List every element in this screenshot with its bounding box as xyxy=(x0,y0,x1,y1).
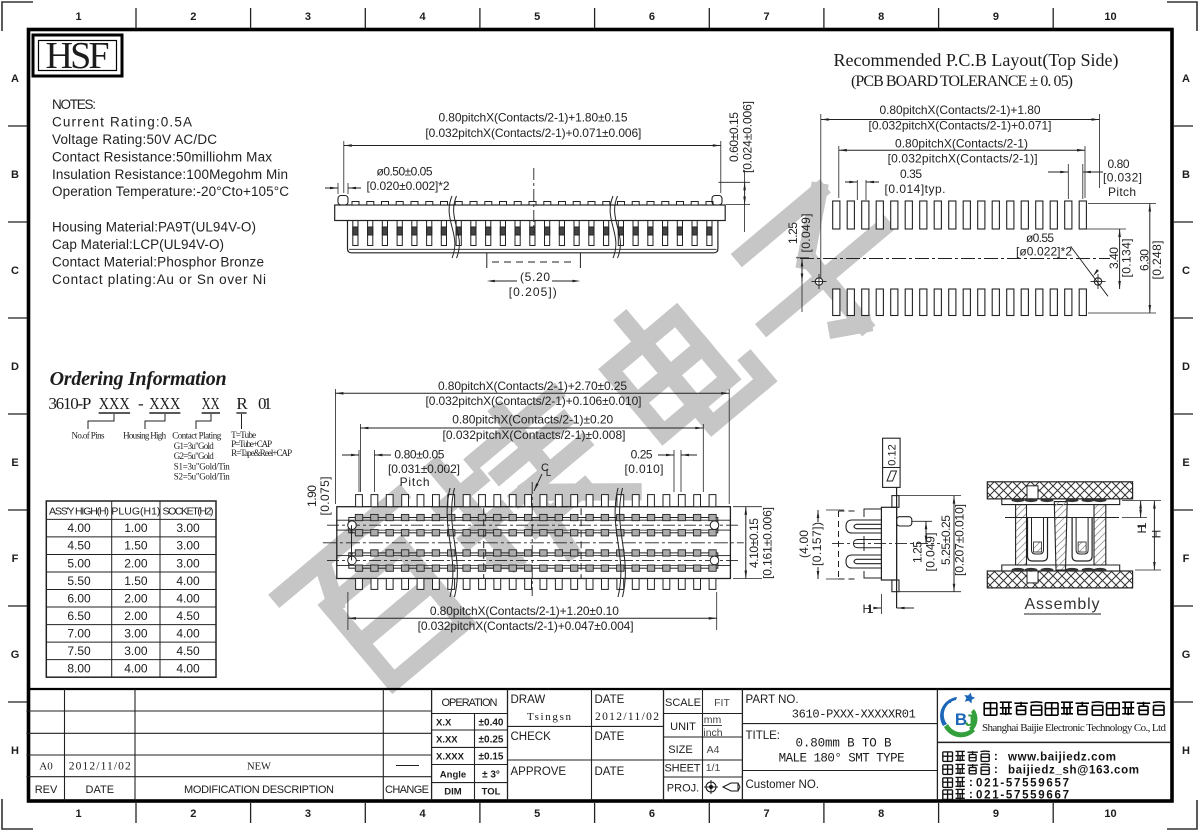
svg-text:[0.032pitchX(Contacts/2-1)+0.1: [0.032pitchX(Contacts/2-1)+0.106±0.010] xyxy=(426,394,642,408)
svg-text:[0.032]: [0.032] xyxy=(1103,171,1142,185)
svg-text:1.25: 1.25 xyxy=(911,541,925,563)
svg-text:SCALE: SCALE xyxy=(665,697,701,709)
svg-text:0.80pitchX(Contacts/2-1)+1.80±: 0.80pitchX(Contacts/2-1)+1.80±0.15 xyxy=(439,111,628,125)
svg-text:MODIFICATION DESCRIPTION: MODIFICATION DESCRIPTION xyxy=(184,784,334,796)
svg-text:Contact plating:Au or Sn o: Contact plating:Au or Sn over Ni xyxy=(52,272,266,287)
svg-text:1.90: 1.90 xyxy=(305,485,319,507)
svg-text:[0.020±0.002]*2: [0.020±0.002]*2 xyxy=(367,179,450,193)
svg-text:0.80pitchX(Contacts/2-1)+1.80: 0.80pitchX(Contacts/2-1)+1.80 xyxy=(880,103,1041,117)
svg-text:3: 3 xyxy=(305,808,311,820)
svg-text:4.50: 4.50 xyxy=(67,539,91,553)
svg-text:1.25: 1.25 xyxy=(786,222,800,244)
svg-text:Recommended P.C.B Layout(Top S: Recommended P.C.B Layout(Top Side) xyxy=(834,50,1119,71)
svg-text:A4: A4 xyxy=(707,744,720,756)
svg-text:baijiedz_sh@163.com: baijiedz_sh@163.com xyxy=(1008,765,1139,777)
svg-text:7.00: 7.00 xyxy=(67,626,91,640)
svg-text:Pitch: Pitch xyxy=(400,475,430,489)
svg-text:XXX: XXX xyxy=(99,394,130,413)
svg-text:No.of Pins: No.of Pins xyxy=(72,431,105,441)
svg-text:C: C xyxy=(11,265,19,277)
svg-text:SIZE: SIZE xyxy=(668,744,692,756)
svg-text:Insulation Resistance:100Mego: Insulation Resistance:100Megohm Min xyxy=(52,167,288,182)
svg-text:PLUG(H1): PLUG(H1) xyxy=(111,506,160,518)
svg-text:0.80mm B TO B: 0.80mm B TO B xyxy=(796,737,892,751)
svg-text:4: 4 xyxy=(420,808,427,820)
svg-text:NOTES:: NOTES: xyxy=(52,97,96,112)
svg-text:ø0.50±0.05: ø0.50±0.05 xyxy=(377,165,433,179)
svg-text:2.00: 2.00 xyxy=(124,556,148,570)
svg-text:H: H xyxy=(1150,530,1164,539)
svg-text:Contact Plating: Contact Plating xyxy=(172,431,222,441)
svg-text:Tsingsn: Tsingsn xyxy=(527,711,572,723)
svg-text:[0.049]: [0.049] xyxy=(924,533,938,572)
svg-text:0.12: 0.12 xyxy=(887,444,899,465)
svg-text:01: 01 xyxy=(258,394,272,413)
svg-text:G2=5u"Gold: G2=5u"Gold xyxy=(174,451,215,461)
svg-text:[0.032pitchX(Contacts/2-1)]: [0.032pitchX(Contacts/2-1)] xyxy=(888,152,1038,166)
svg-text:[0.049]: [0.049] xyxy=(799,214,813,253)
svg-text:3: 3 xyxy=(305,11,311,23)
svg-text:L: L xyxy=(546,468,552,479)
svg-text:Shanghai Baijie Electronic Tec: Shanghai Baijie Electronic Technology Co… xyxy=(982,722,1167,734)
svg-text:±0.25: ±0.25 xyxy=(479,735,504,746)
svg-text:9: 9 xyxy=(993,808,999,820)
svg-text:DATE: DATE xyxy=(595,731,625,743)
svg-text:4.10±0.15: 4.10±0.15 xyxy=(747,518,761,568)
svg-text:TOL: TOL xyxy=(482,787,501,798)
svg-text:CHECK: CHECK xyxy=(511,731,552,743)
svg-text:5: 5 xyxy=(534,11,540,23)
svg-text:PART NO.: PART NO. xyxy=(746,694,799,706)
svg-text:H1: H1 xyxy=(863,602,874,616)
svg-text:D: D xyxy=(1182,361,1190,373)
svg-text:Ordering Information: Ordering Information xyxy=(50,368,227,390)
svg-text:0.80pitchX(Contacts/2-1): 0.80pitchX(Contacts/2-1) xyxy=(895,137,1028,151)
svg-text:3610-P: 3610-P xyxy=(48,394,91,413)
svg-text:1.50: 1.50 xyxy=(124,539,148,553)
svg-text:www.baijiedz.com: www.baijiedz.com xyxy=(1007,752,1116,764)
svg-text:0.60±0.15: 0.60±0.15 xyxy=(727,112,741,162)
svg-text:Contact Material:Phosphor Br: Contact Material:Phosphor Bronze xyxy=(52,254,264,269)
svg-text:PROJ.: PROJ. xyxy=(667,783,699,795)
svg-text:APPROVE: APPROVE xyxy=(511,766,567,778)
svg-text:OPERATION: OPERATION xyxy=(442,697,498,709)
svg-text:D: D xyxy=(11,361,19,373)
svg-text:6.50: 6.50 xyxy=(67,609,91,623)
svg-text:3610-PXXX-XXXXXR01: 3610-PXXX-XXXXXR01 xyxy=(792,708,916,722)
svg-text:[0.205]): [0.205]) xyxy=(509,285,557,299)
svg-text:5.50: 5.50 xyxy=(67,574,91,588)
svg-text:G: G xyxy=(11,649,20,661)
svg-text:[0.032pitchX(Contacts/2-1)±0.0: [0.032pitchX(Contacts/2-1)±0.008] xyxy=(443,428,626,442)
svg-text:B: B xyxy=(11,169,19,181)
svg-text:-: - xyxy=(138,394,144,413)
svg-text:0.35: 0.35 xyxy=(900,167,922,181)
svg-text:[0.207±0.010]: [0.207±0.010] xyxy=(953,504,967,576)
svg-text:[0.248]: [0.248] xyxy=(1150,241,1164,280)
svg-text:C: C xyxy=(1182,265,1190,277)
svg-text:Housing Material:PA9T(UL94V-O: Housing Material:PA9T(UL94V-O) xyxy=(52,220,256,235)
svg-text:3.00: 3.00 xyxy=(176,539,200,553)
svg-text:H1: H1 xyxy=(1135,522,1149,533)
svg-text:[0.075]: [0.075] xyxy=(318,477,332,516)
svg-text:SHEET: SHEET xyxy=(665,763,701,775)
svg-text:DATE: DATE xyxy=(595,766,625,778)
svg-text:4.50: 4.50 xyxy=(176,609,200,623)
svg-text:SOCKET(H2): SOCKET(H2) xyxy=(163,506,214,518)
svg-text:0.80pitchX(Contacts/2-1)+2.70±: 0.80pitchX(Contacts/2-1)+2.70±0.25 xyxy=(438,379,627,393)
svg-text:G: G xyxy=(1182,649,1191,661)
svg-text:ASS'Y HIGH(H): ASS'Y HIGH(H) xyxy=(49,506,109,518)
svg-text:8: 8 xyxy=(878,808,884,820)
svg-text:2: 2 xyxy=(190,808,196,820)
svg-text:7: 7 xyxy=(764,11,770,23)
svg-text:6: 6 xyxy=(649,808,655,820)
svg-text:NEW: NEW xyxy=(247,762,271,773)
svg-text:DATE: DATE xyxy=(595,694,625,706)
svg-text:H: H xyxy=(11,745,19,757)
svg-text:X.XXX: X.XXX xyxy=(436,752,465,763)
svg-text:J: J xyxy=(965,711,974,730)
svg-text:4.00: 4.00 xyxy=(176,626,200,640)
svg-text:Angle: Angle xyxy=(440,770,466,781)
svg-text:5.25±0.25: 5.25±0.25 xyxy=(939,515,953,565)
svg-text:4.50: 4.50 xyxy=(176,644,200,658)
svg-text:Voltage Rating:50V AC/DC: Voltage Rating:50V AC/DC xyxy=(52,132,217,147)
svg-text:A0: A0 xyxy=(39,761,53,773)
svg-text:[0.014]typ.: [0.014]typ. xyxy=(885,182,946,196)
svg-text:5.00: 5.00 xyxy=(67,556,91,570)
svg-text:[0.134]: [0.134] xyxy=(1120,239,1134,278)
svg-text:1: 1 xyxy=(76,11,82,23)
svg-text:F: F xyxy=(1183,553,1190,565)
svg-text:0.80±0.05: 0.80±0.05 xyxy=(394,448,444,462)
svg-text:1/1: 1/1 xyxy=(706,762,721,774)
svg-text:DATE: DATE xyxy=(86,784,115,796)
svg-text:2012/11/02: 2012/11/02 xyxy=(595,711,659,723)
svg-text:DIM: DIM xyxy=(444,787,462,798)
svg-text:(4.00: (4.00 xyxy=(797,530,811,558)
svg-text:Customer NO.: Customer NO. xyxy=(746,779,820,791)
svg-text:6: 6 xyxy=(649,11,655,23)
svg-text:4.00: 4.00 xyxy=(176,574,200,588)
svg-text:S2=5u"Gold/Tin: S2=5u"Gold/Tin xyxy=(174,472,231,482)
svg-text:021-57559657: 021-57559657 xyxy=(976,778,1069,790)
svg-text:3.00: 3.00 xyxy=(124,626,148,640)
svg-text:2: 2 xyxy=(190,11,196,23)
svg-text:ø0.55: ø0.55 xyxy=(1026,231,1054,245)
svg-text:1: 1 xyxy=(76,808,82,820)
svg-text:1.50: 1.50 xyxy=(124,574,148,588)
svg-text:Contact Resistance:50milliohm: Contact Resistance:50milliohm Max xyxy=(52,149,272,164)
svg-text::: : xyxy=(994,762,998,776)
svg-text:MALE 180° SMT TYPE: MALE 180° SMT TYPE xyxy=(779,752,905,766)
svg-text:2012/11/02: 2012/11/02 xyxy=(69,761,131,773)
svg-text:[0.010]: [0.010] xyxy=(625,462,664,476)
svg-text:0.80pitchX(Contacts/2-1)+1.20±: 0.80pitchX(Contacts/2-1)+1.20±0.10 xyxy=(430,604,619,618)
svg-text:TITLE:: TITLE: xyxy=(746,730,781,742)
svg-text:9: 9 xyxy=(993,11,999,23)
svg-text::: : xyxy=(994,749,998,763)
svg-text:0.80pitchX(Contacts/2-1)±0.20: 0.80pitchX(Contacts/2-1)±0.20 xyxy=(452,413,613,427)
svg-text:0.80: 0.80 xyxy=(1108,157,1130,171)
svg-text:10: 10 xyxy=(1104,11,1116,23)
svg-text:S1=3u"Gold/Tin: S1=3u"Gold/Tin xyxy=(174,461,231,471)
svg-text:mm: mm xyxy=(704,714,722,726)
svg-text:CHANGE: CHANGE xyxy=(385,784,429,796)
svg-text:XX: XX xyxy=(202,394,220,413)
svg-text:4.00: 4.00 xyxy=(124,661,148,675)
svg-text:XXX: XXX xyxy=(149,394,180,413)
svg-text:REV: REV xyxy=(35,784,58,796)
svg-text:B: B xyxy=(1182,169,1190,181)
svg-text:Assembly: Assembly xyxy=(1025,596,1101,613)
svg-text:X.XX: X.XX xyxy=(436,735,458,746)
svg-text:inch: inch xyxy=(703,727,722,739)
svg-text:10: 10 xyxy=(1104,808,1116,820)
svg-text:A: A xyxy=(11,73,19,85)
svg-text:(5.20: (5.20 xyxy=(520,270,550,284)
svg-text:R: R xyxy=(236,394,248,413)
svg-text:4.00: 4.00 xyxy=(67,521,91,535)
svg-text:±0.40: ±0.40 xyxy=(479,718,504,729)
svg-text:F: F xyxy=(12,553,19,565)
svg-text:5: 5 xyxy=(534,808,540,820)
svg-text:±0.15: ±0.15 xyxy=(479,752,504,763)
svg-text:[0.032pitchX(Contacts/2-1)+0.0: [0.032pitchX(Contacts/2-1)+0.071±0.006] xyxy=(425,126,641,140)
svg-text:[ø0.022]*2: [ø0.022]*2 xyxy=(1016,245,1072,259)
svg-text:[0.024±0.006]: [0.024±0.006] xyxy=(741,101,755,173)
svg-text:UNIT: UNIT xyxy=(670,721,696,733)
svg-text:2.00: 2.00 xyxy=(124,591,148,605)
svg-text:Current Rating:0.5A: Current Rating:0.5A xyxy=(52,115,192,130)
svg-text:[0.032pitchX(Contacts/2-1)+0.0: [0.032pitchX(Contacts/2-1)+0.071] xyxy=(869,119,1052,133)
svg-text:HSF: HSF xyxy=(46,35,110,77)
svg-text:(PCB BOARD TOLERANCE ± 0. 05): (PCB BOARD TOLERANCE ± 0. 05) xyxy=(851,73,1073,90)
svg-text:FIT: FIT xyxy=(714,697,730,709)
svg-text:4: 4 xyxy=(420,11,427,23)
svg-text:H: H xyxy=(1182,745,1190,757)
svg-text:7: 7 xyxy=(764,808,770,820)
svg-text:R=Tape&Reel+CAP: R=Tape&Reel+CAP xyxy=(231,448,292,458)
svg-text:3.00: 3.00 xyxy=(176,521,200,535)
svg-text:E: E xyxy=(11,457,18,469)
svg-text:A: A xyxy=(1182,73,1190,85)
svg-text:1.00: 1.00 xyxy=(124,521,148,535)
svg-text:3.00: 3.00 xyxy=(124,644,148,658)
svg-text:6.00: 6.00 xyxy=(67,591,91,605)
svg-text:DRAW: DRAW xyxy=(511,694,546,706)
svg-text:Operation Temperature:-20°Cto: Operation Temperature:-20°Cto+105°C xyxy=(52,184,289,199)
svg-text:0.25: 0.25 xyxy=(631,448,653,462)
svg-text:[0.157]): [0.157]) xyxy=(810,522,824,566)
svg-text:8: 8 xyxy=(878,11,884,23)
svg-text:2.00: 2.00 xyxy=(124,609,148,623)
svg-text:4.00: 4.00 xyxy=(176,591,200,605)
svg-text:Cap Material:LCP(UL94V-O): Cap Material:LCP(UL94V-O) xyxy=(52,237,224,252)
svg-text:± 3°: ± 3° xyxy=(482,770,500,781)
svg-text:4.00: 4.00 xyxy=(176,661,200,675)
svg-text:[0.032pitchX(Contacts/2-1)+0.0: [0.032pitchX(Contacts/2-1)+0.047±0.004] xyxy=(418,619,634,633)
svg-text::: : xyxy=(969,787,973,801)
svg-text:7.50: 7.50 xyxy=(67,644,91,658)
svg-text:3.00: 3.00 xyxy=(176,556,200,570)
svg-text:Housing High: Housing High xyxy=(123,431,167,441)
svg-text:021-57559667: 021-57559667 xyxy=(976,790,1069,802)
svg-text:X.X: X.X xyxy=(436,718,452,729)
svg-text:[0.161±0.006]: [0.161±0.006] xyxy=(761,507,775,579)
svg-text:E: E xyxy=(1182,457,1189,469)
svg-text:G1=3u"Gold: G1=3u"Gold xyxy=(174,441,215,451)
svg-text:8.00: 8.00 xyxy=(67,661,91,675)
svg-text:Pitch: Pitch xyxy=(1108,185,1136,199)
